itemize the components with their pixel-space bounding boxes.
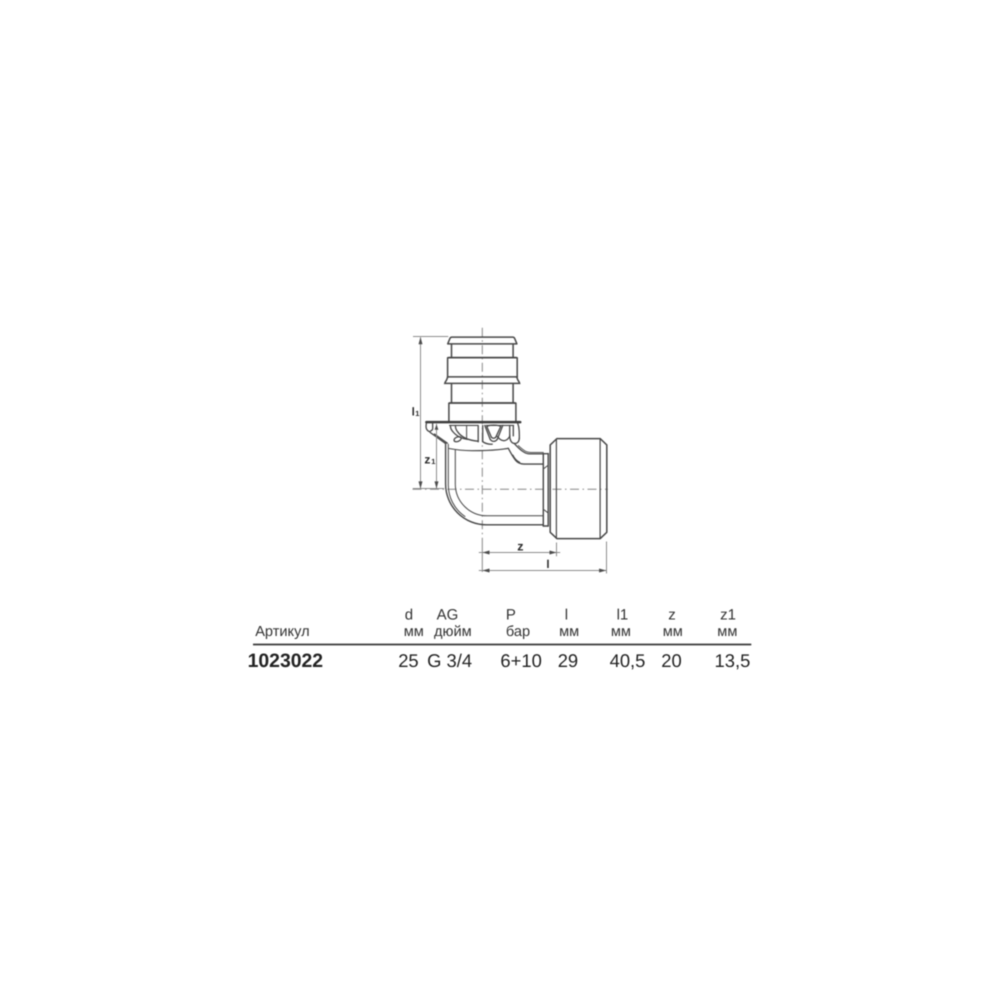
svg-text:мм: мм <box>717 624 737 640</box>
svg-text:13,5: 13,5 <box>715 650 751 671</box>
svg-text:Артикул: Артикул <box>255 624 309 640</box>
svg-text:z: z <box>424 453 430 467</box>
svg-text:1023022: 1023022 <box>248 650 324 672</box>
svg-text:25: 25 <box>398 650 418 671</box>
svg-text:бар: бар <box>506 624 530 640</box>
svg-text:мм: мм <box>663 624 683 640</box>
svg-text:6+10: 6+10 <box>500 650 541 671</box>
svg-text:l: l <box>565 606 568 623</box>
svg-text:AG: AG <box>437 606 459 623</box>
svg-text:29: 29 <box>558 650 578 671</box>
svg-text:l1: l1 <box>617 606 629 623</box>
svg-text:P: P <box>506 606 516 623</box>
svg-text:G 3/4: G 3/4 <box>427 650 472 671</box>
svg-text:мм: мм <box>611 624 631 640</box>
svg-text:мм: мм <box>559 624 579 640</box>
svg-text:20: 20 <box>661 650 681 671</box>
svg-text:1: 1 <box>431 457 435 466</box>
svg-text:мм: мм <box>404 624 424 640</box>
svg-text:z: z <box>668 606 676 623</box>
svg-text:40,5: 40,5 <box>610 650 646 671</box>
svg-text:1: 1 <box>415 409 419 418</box>
svg-text:l: l <box>546 559 549 571</box>
svg-text:дюйм: дюйм <box>434 624 472 640</box>
svg-text:z: z <box>517 539 523 553</box>
svg-text:z1: z1 <box>720 606 736 623</box>
svg-text:d: d <box>405 606 413 623</box>
